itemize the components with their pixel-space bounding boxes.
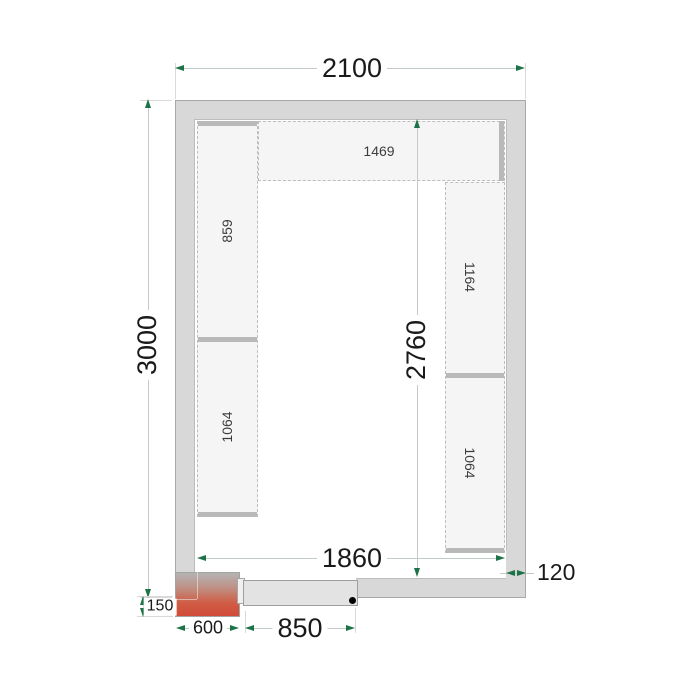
- arrow-left-icon: [176, 625, 185, 631]
- arrow-left-icon: [245, 625, 254, 631]
- shelf-right-lower-label: 1064: [463, 447, 477, 478]
- dim-unit-offset: 150: [144, 599, 177, 616]
- extension-line: [525, 63, 526, 99]
- shelf-right: [445, 182, 505, 553]
- cooling-unit: [175, 572, 240, 617]
- extension-line: [355, 608, 356, 633]
- shelf-bar-right-bottom: [446, 548, 504, 553]
- wall-edge-under-unit: [197, 572, 198, 599]
- arrow-down-icon: [414, 568, 420, 577]
- arrow-right-icon: [346, 625, 355, 631]
- arrow-up-icon: [414, 119, 420, 128]
- shelf-right-upper-label: 1164: [463, 262, 477, 292]
- shelf-left-upper-label: 859: [220, 219, 234, 242]
- arrow-right-icon: [496, 555, 505, 561]
- shelf-left: [197, 121, 258, 517]
- arrow-right-icon: [517, 570, 526, 576]
- dim-wall-thickness: 120: [537, 560, 575, 584]
- dim-unit-width: 600: [189, 619, 227, 638]
- arrow-right-icon: [516, 65, 525, 71]
- dim-outer-width: 2100: [317, 54, 387, 82]
- dim-inner-width: 1860: [317, 544, 387, 572]
- arrow-left-icon: [506, 570, 515, 576]
- door-leaf: [243, 580, 358, 606]
- shelf-bar-right-divider: [446, 373, 504, 378]
- arrow-left-icon: [175, 65, 184, 71]
- shelf-bar-top-right: [499, 121, 504, 181]
- dim-door-width: 850: [272, 614, 327, 642]
- extension-line: [506, 550, 507, 584]
- arrow-left-icon: [197, 555, 206, 561]
- dim-outer-height: 3000: [133, 310, 161, 380]
- door-handle-dot: [349, 597, 356, 604]
- shelf-top-length-label: 1469: [363, 144, 394, 158]
- wall-edge-under-unit: [175, 599, 197, 600]
- shelf-bar-left-top: [198, 121, 257, 126]
- shelf-bar-left-bottom: [198, 512, 257, 517]
- arrow-right-icon: [230, 625, 239, 631]
- shelf-bar-left-divider: [198, 337, 257, 342]
- dim-inner-height: 2760: [402, 315, 430, 385]
- arrow-up-icon: [145, 99, 151, 108]
- floor-plan-canvas: 1469 859 1064 1164 1064 2100 3000 2760 1…: [0, 0, 700, 700]
- shelf-left-lower-label: 1064: [220, 411, 234, 442]
